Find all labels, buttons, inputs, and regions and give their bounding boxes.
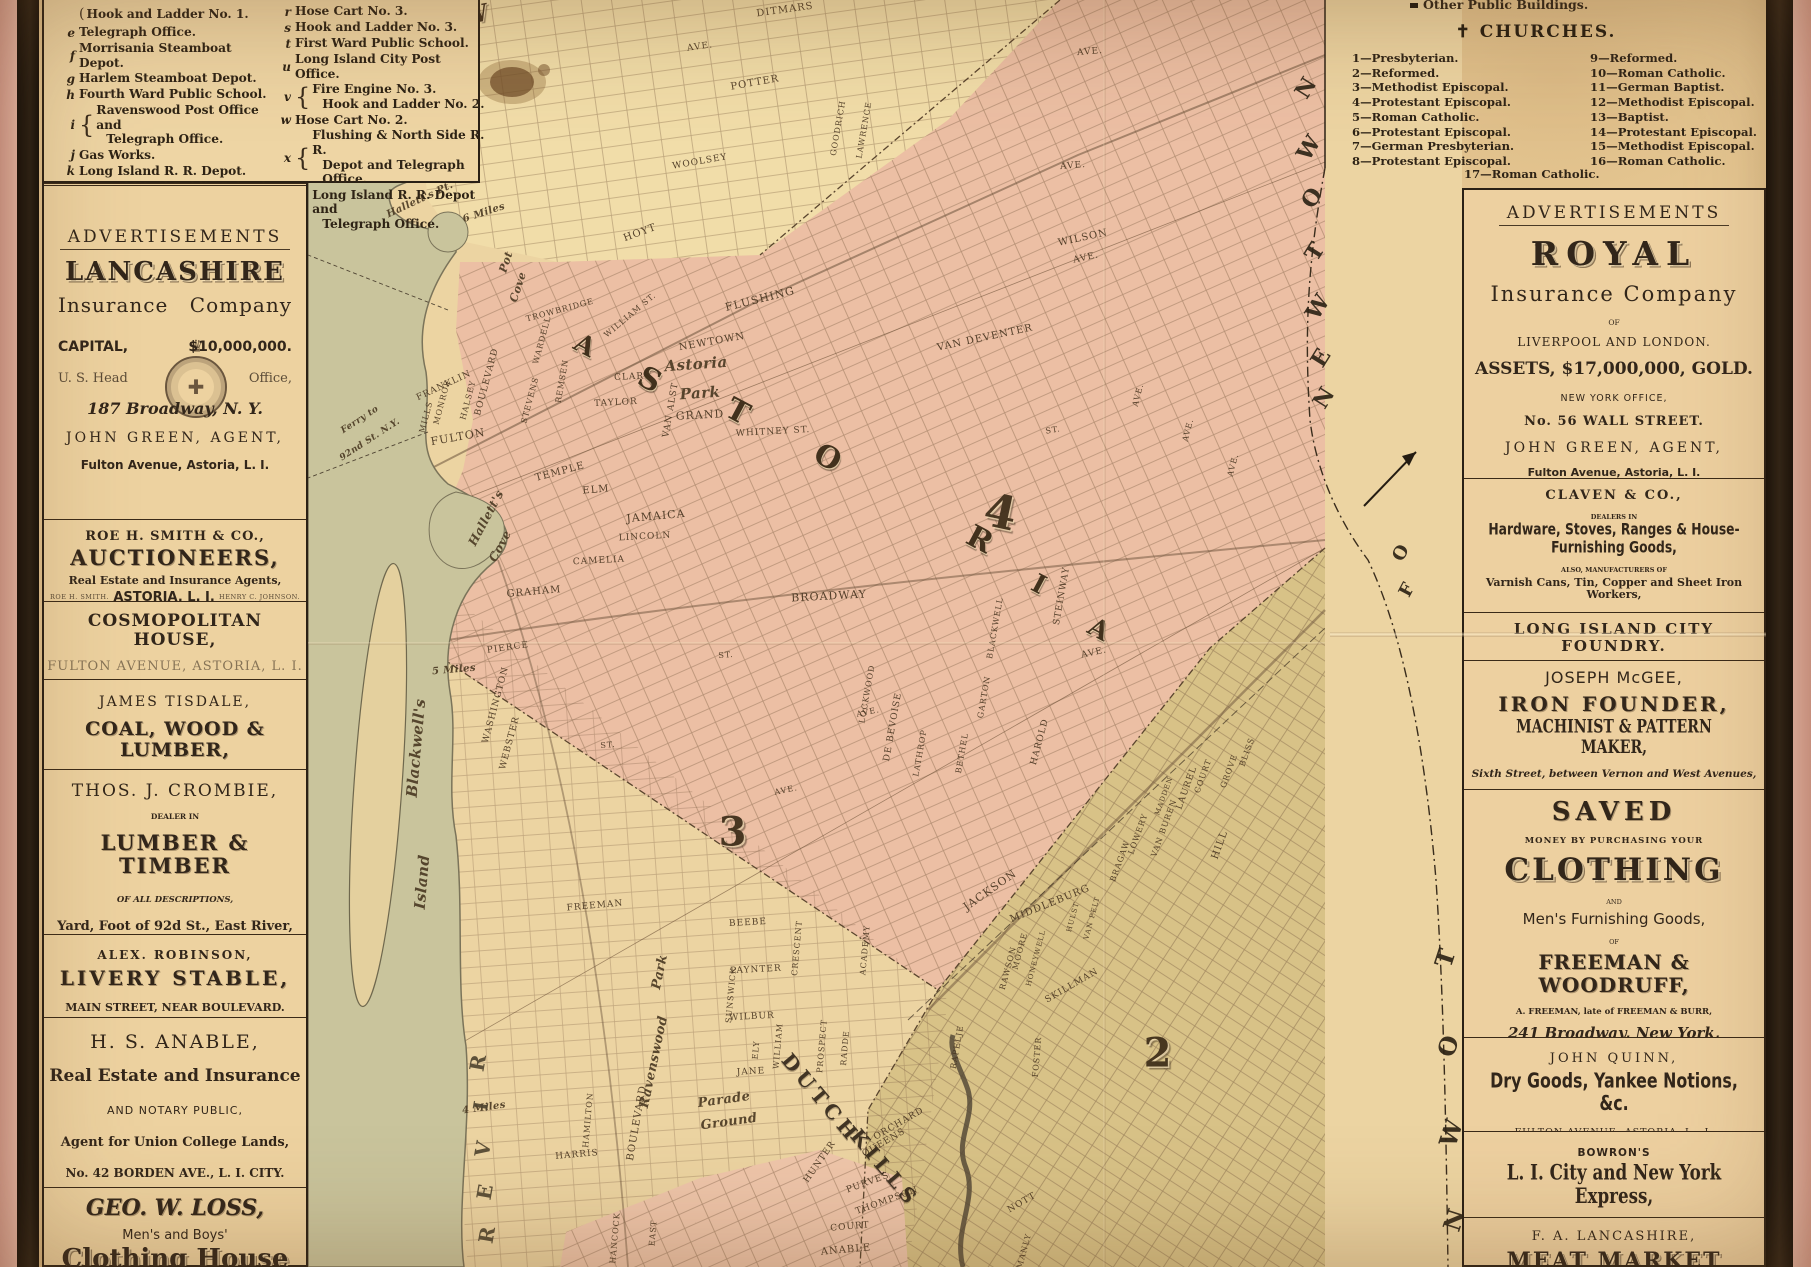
map-label: LOWERY: [1126, 812, 1149, 855]
legend-item-label: Fourth Ward Public School.: [79, 87, 267, 102]
map-label: BETHEL: [954, 732, 970, 774]
legend-item: (Hook and Ladder No. 1.: [60, 4, 272, 24]
ad-text: ASTORIA, L. I.: [113, 590, 214, 601]
ad-text: CLOTHING: [1504, 853, 1723, 888]
legend-item-line: Hook and Ladder No. 3.: [295, 20, 457, 35]
ad-roe-smith-auctioneers: ROE H. SMITH & CO.,AUCTIONEERS,Real Esta…: [44, 519, 306, 601]
map-label: CRESCENT: [790, 920, 804, 976]
ad-bowron-express: BOWRON'SL. I. City and New York Express,…: [1464, 1131, 1764, 1217]
map-label: LAWRENCE: [855, 101, 874, 159]
ad-text: Agent for Union College Lands,: [61, 1136, 289, 1151]
map-label: Park: [679, 383, 721, 404]
ad-divider: [1464, 660, 1764, 661]
ad-text: ADVERTISEMENTS: [60, 228, 291, 250]
ad-line: FULTON AVENUE, ASTORIA, L. -I.: [1464, 1121, 1764, 1131]
map-label: GRAND: [675, 407, 724, 423]
ad-line: ROE H. SMITH & CO.,: [44, 526, 306, 545]
map-label: A: [569, 328, 602, 364]
map-label: 2: [1144, 1030, 1173, 1077]
ad-line: FREEMAN & WOODRUFF,: [1464, 951, 1764, 996]
legend-item-label: Hook and Ladder No. 3.: [295, 20, 457, 35]
legend-item-line: Morrisania Steamboat Depot.: [79, 41, 272, 70]
legend-item-key: w: [276, 113, 291, 127]
map-label: W: [1300, 290, 1335, 325]
map-label: W: [1291, 131, 1326, 166]
legend-item-line: Hose Cart No. 3.: [295, 4, 408, 19]
map-label: NOTT: [1006, 1191, 1038, 1215]
ad-line: 241 Broadway, New York,: [1464, 1024, 1764, 1037]
ad-line: Men's Furnishing Goods,: [1464, 910, 1764, 928]
legend-item-line: Long Island City Post Office.: [295, 52, 488, 81]
map-label: I: [1026, 569, 1052, 602]
church-item: 6—Protestant Episcopal.: [1352, 125, 1514, 140]
legend-item-line: Fire Engine No. 3.: [312, 82, 484, 97]
ad-line: LANCASHIRE: [44, 258, 306, 287]
map-label: LATHROP: [911, 729, 928, 778]
map-label: O: [808, 436, 848, 480]
legend-item-line: Telegraph Office.: [96, 132, 272, 147]
map-label: AVE.: [1060, 160, 1087, 172]
map-label: E: [1306, 344, 1337, 372]
map-label: RADDE: [839, 1030, 851, 1066]
map-label: HULST: [1065, 901, 1081, 933]
ad-line: IRON FOUNDER,: [1464, 693, 1764, 715]
legend-item-line: Hook and Ladder No. 2.: [312, 97, 484, 112]
legend-item-brace: {: [79, 115, 94, 135]
church-item: 11—German Baptist.: [1590, 80, 1757, 95]
legend-item: i{Ravenswood Post Office andTelegraph Of…: [60, 103, 272, 147]
legend-item: uLong Island City Post Office.: [276, 52, 488, 81]
church-item: 13—Baptist.: [1590, 110, 1757, 125]
church-item: 5—Roman Catholic.: [1352, 110, 1514, 125]
ad-text: Fulton Avenue, Astoria, L. I.: [81, 459, 269, 472]
map-label: DE BEVOISE: [882, 692, 904, 763]
ad-cosmopolitan-house: COSMOPOLITAN HOUSE,FULTON AVENUE, ASTORI…: [44, 601, 306, 679]
legend-item: kLong Island R. R. Depot.: [60, 164, 272, 179]
ad-line: MEAT MARKET: [1464, 1249, 1764, 1265]
scan-border-right: [1766, 0, 1793, 1267]
ad-line: JOSEPH McGEE,: [1464, 669, 1764, 687]
ad-text: Hardware, Stoves, Ranges & House-Furnish…: [1482, 522, 1746, 558]
legend-item: fMorrisania Steamboat Depot.: [60, 41, 272, 70]
ad-line: MONEY BY PURCHASING YOUR: [1464, 829, 1764, 847]
ad-line: MAIN STREET, NEAR BOULEVARD.: [44, 997, 306, 1015]
legend-item-label: Gas Works.: [79, 148, 155, 163]
ad-line: ADVERTISEMENTS: [44, 228, 306, 250]
ad-text: L. I. City and New York Express,: [1482, 1161, 1746, 1209]
map-label: JANE: [736, 1066, 765, 1077]
legend-item-key: g: [60, 72, 75, 86]
map-label: TEMPLE: [534, 460, 586, 484]
map-label: AVE.: [1226, 452, 1241, 477]
advertisements-right-column: ADVERTISEMENTSROYALInsurance CompanyOFLI…: [1462, 188, 1766, 1267]
ad-text: HENRY C. JOHNSON.: [219, 593, 300, 601]
map-label: F: [1395, 579, 1420, 600]
ad-text: H. S. ANABLE,: [90, 1032, 260, 1053]
map-label: O: [1431, 1032, 1465, 1061]
ad-line: Clothing House: [44, 1245, 306, 1266]
ad-text: JAMES TISDALE,: [99, 695, 251, 711]
legend-item-line: Telegraph Office.: [79, 25, 196, 40]
ad-line: FULTON AVENUE, ASTORIA, L. I.: [44, 656, 306, 675]
map-label: R: [474, 1223, 501, 1246]
ad-line: U. S. HeadOffice,: [44, 371, 306, 386]
ad-text: OF: [1608, 319, 1619, 327]
map-label: VAN DEVENTER: [936, 322, 1034, 353]
ad-text: Insurance Company: [1490, 283, 1737, 307]
map-label: HAMILTON: [581, 1092, 595, 1148]
map-label: HAROLD: [1029, 718, 1051, 767]
antique-map-sheet: DITMARSAVE.POTTERAVE.WOOLSEYAVE.GOODRICH…: [0, 0, 1811, 1267]
ad-line: Fulton Avenue, Astoria, L. I.: [44, 455, 306, 473]
ad-line: NEW YORK OFFICE,: [1464, 387, 1764, 405]
public-building-icon: [1410, 3, 1418, 8]
ad-line: Dry Goods, Yankee Notions, &c.: [1464, 1073, 1764, 1113]
legend-item-key: x: [276, 151, 291, 165]
ad-text: CAPITAL,: [58, 339, 128, 355]
ad-line: AND: [1464, 890, 1764, 908]
ad-text: ROYAL: [1531, 236, 1697, 273]
ad-text: IRON FOUNDER,: [1498, 693, 1729, 715]
map-label: R: [465, 1051, 492, 1074]
ad-line: ROE H. SMITH.ASTORIA, L. I.HENRY C. JOHN…: [44, 590, 306, 601]
map-label: FULTON: [430, 426, 487, 448]
map-label: RAPELJE: [949, 1024, 966, 1069]
ad-text: ALSO, MANUFACTURERS OF: [1561, 567, 1667, 574]
map-label: T: [719, 391, 756, 433]
ad-line: THOS. J. CROMBIE,: [44, 782, 306, 801]
legend-item-label: Morrisania Steamboat Depot.: [79, 41, 272, 70]
map-label: MANLY: [1015, 1232, 1033, 1267]
map-label: T: [1428, 945, 1461, 971]
legend-item-line: Ravenswood Post Office and: [96, 103, 272, 132]
map-label: JAMAICA: [626, 507, 686, 525]
legend-item-key: f: [60, 49, 75, 63]
map-label: WILLIAM ST.: [602, 291, 657, 340]
ad-line: MACHINIST & PATTERN MAKER,: [1464, 719, 1764, 755]
legend-item-label: Hose Cart No. 2.: [295, 113, 408, 128]
ad-line: Fulton Avenue, Astoria, L. I.: [1464, 462, 1764, 478]
map-label: Astoria: [664, 353, 728, 375]
map-label: A: [1083, 612, 1116, 648]
ad-text: Real Estate and Insurance Agents,: [69, 575, 282, 587]
legend-item-brace: {: [295, 87, 310, 107]
church-item: 12—Methodist Episcopal.: [1590, 95, 1757, 110]
ad-text: BOWRON'S: [1577, 1148, 1650, 1160]
map-label: AVE.: [686, 40, 713, 54]
legend-item-key: j: [60, 148, 75, 162]
churches-column-2: 9—Reformed.10—Roman Catholic.11—German B…: [1590, 51, 1757, 169]
map-label: HANCOCK: [608, 1212, 621, 1264]
ad-line: OF: [1464, 311, 1764, 329]
ad-text: ROE H. SMITH & CO.,: [85, 530, 264, 545]
ad-text: GEO. W. LOSS,: [86, 1196, 264, 1221]
ad-line: L. I. City and New York Express,: [1464, 1164, 1764, 1207]
map-label: N: [1308, 383, 1341, 414]
legend-item: eTelegraph Office.: [60, 25, 272, 40]
advertisements-left-column: ADVERTISEMENTSLANCASHIREInsuranceCompany…: [42, 183, 308, 1267]
ad-text: LUMBER & TIMBER: [44, 831, 306, 878]
church-item: 4—Protestant Episcopal.: [1352, 95, 1514, 110]
legend-item: v{Fire Engine No. 3.Hook and Ladder No. …: [276, 82, 488, 111]
ad-lancashire-insurance: ADVERTISEMENTSLANCASHIREInsuranceCompany…: [44, 183, 306, 519]
ad-line: JOHN QUINN,: [1464, 1048, 1764, 1067]
ad-line: JOHN GREEN, AGENT,: [1464, 438, 1764, 457]
map-label: Parade: [697, 1089, 751, 1111]
map-label: Cove: [486, 528, 514, 564]
map-label: BEEBE: [729, 917, 767, 929]
map-label: Island: [411, 854, 434, 910]
legend-item: wHose Cart No. 2.: [276, 112, 488, 127]
ad-text: FULTON AVENUE, ASTORIA, L. I.: [47, 660, 302, 675]
map-label: WOOLSEY: [672, 152, 729, 172]
map-label: PAYNTER: [730, 964, 782, 977]
ad-text: Company: [190, 293, 292, 317]
map-label: S: [632, 359, 668, 401]
map-label: BROADWAY: [791, 588, 867, 605]
ad-text: Men's and Boys': [122, 1229, 227, 1244]
map-label: NEWTOWN: [678, 331, 746, 354]
ad-text: NEW YORK OFFICE,: [1561, 394, 1668, 405]
ad-text: No. 56 WALL STREET.: [1524, 415, 1704, 430]
ad-text: Clothing House: [62, 1245, 289, 1266]
ad-line: No. 42 BORDEN AVE., L. I. CITY.: [44, 1163, 306, 1181]
ad-text: ASSETS, $17,000,000, GOLD.: [1475, 360, 1753, 379]
legend-item-line: Fourth Ward Public School.: [79, 87, 267, 102]
map-label: PROSPECT: [815, 1019, 829, 1074]
map-label: PIERCE: [486, 640, 529, 656]
map-label: Pot: [496, 250, 515, 275]
ad-text: MACHINIST & PATTERN MAKER,: [1482, 716, 1746, 757]
ad-line: ALSO, MANUFACTURERS OF: [1464, 558, 1764, 576]
map-label: FOSTER: [1031, 1036, 1044, 1077]
legend-column-1: (Hook and Ladder No. 1.eTelegraph Office…: [60, 4, 272, 212]
map-label: REMSEN: [554, 358, 571, 403]
map-label: ST.: [1045, 424, 1062, 436]
ad-text: COSMOPOLITAN HOUSE,: [44, 612, 306, 650]
map-label: WEBSTER: [498, 715, 522, 771]
ad-text: LANCASHIRE: [65, 258, 285, 287]
ad-text: LIVERPOOL AND LONDON.: [1517, 336, 1711, 349]
legend-item-key: i: [60, 118, 75, 132]
ad-text: LONG ISLAND CITY FOUNDRY.: [1464, 621, 1764, 655]
legend-item-label: Flushing & North Side R. R.Depot and Tel…: [312, 128, 488, 186]
legend-item-line: Hook and Ladder No. 1.: [86, 7, 248, 22]
ad-line: H. S. ANABLE,: [44, 1032, 306, 1053]
map-label: AVE.: [1131, 382, 1146, 407]
map-label: BLISS: [1238, 736, 1257, 767]
ad-line: CLOTHING: [1464, 853, 1764, 888]
ad-line: BOWRON'S: [1464, 1142, 1764, 1160]
ad-text: Sixth Street, between Vernon and West Av…: [1472, 769, 1757, 781]
ad-line: OF: [1464, 930, 1764, 948]
map-label: GARTON: [976, 675, 992, 719]
ad-text: JOHN QUINN,: [1550, 1052, 1679, 1067]
map-label: 5 Miles: [432, 663, 477, 678]
map-label: E: [472, 1180, 499, 1201]
ad-line: Insurance Company: [1464, 283, 1764, 307]
ad-line: JAMES TISDALE,: [44, 692, 306, 711]
map-label: SKILLMAN: [1044, 967, 1101, 1006]
ad-text: AUCTIONEERS,: [70, 546, 279, 570]
ad-line: Office cor. Jackson Ave. and 3d St., L. …: [1464, 1212, 1764, 1217]
legend-item-key: k: [60, 164, 75, 178]
ad-text: 241 Broadway, New York,: [1508, 1025, 1720, 1037]
legend-item: sHook and Ladder No. 3.: [276, 20, 488, 35]
ad-text: ALEX. ROBINSON,: [97, 949, 252, 962]
ad-text: Fulton Avenue, Astoria, L. I.: [1528, 467, 1701, 478]
map-label: GROVE: [1219, 753, 1240, 789]
map-label: AVE.: [1080, 645, 1107, 660]
ad-geo-loss-clothing: GEO. W. LOSS,Men's and Boys'Clothing Hou…: [44, 1187, 306, 1266]
ad-anable-realestate: H. S. ANABLE,Real Estate and InsuranceAN…: [44, 1017, 306, 1187]
church-item: 15—Methodist Episcopal.: [1590, 139, 1757, 154]
ad-text: Dry Goods, Yankee Notions, &c.: [1482, 1070, 1746, 1116]
ad-text: Men's Furnishing Goods,: [1523, 911, 1706, 928]
ad-line: LIVERY STABLE,: [44, 967, 306, 989]
legend-public-buildings: (Hook and Ladder No. 1.eTelegraph Office…: [42, 0, 480, 183]
legend-item-key: h: [60, 88, 75, 102]
ad-royal-insurance: ADVERTISEMENTSROYALInsurance CompanyOFLI…: [1464, 190, 1764, 478]
ad-james-tisdale-coal: JAMES TISDALE,COAL, WOOD & LUMBER,BOULEV…: [44, 679, 306, 769]
ad-line: Real Estate and Insurance: [44, 1067, 306, 1086]
legend-item-label: Harlem Steamboat Depot.: [79, 71, 257, 86]
legend-item-line: Harlem Steamboat Depot.: [79, 71, 257, 86]
map-label: LINCOLN: [619, 531, 672, 544]
ad-text: AND NOTARY PUBLIC,: [107, 1105, 243, 1117]
church-item: 16—Roman Catholic.: [1590, 154, 1757, 169]
map-label: Cove: [507, 270, 529, 304]
ad-text: FREEMAN & WOODRUFF,: [1464, 951, 1764, 996]
ad-text: SAVED: [1552, 798, 1677, 827]
ad-text: JOHN GREEN, AGENT,: [66, 431, 284, 447]
legend-item-brace: {: [295, 148, 310, 168]
legend-item-label: Long Island R. R. Depot andTelegraph Off…: [312, 188, 488, 232]
map-label: Blackwell's: [403, 698, 430, 798]
ad-text: MAIN STREET, NEAR BOULEVARD.: [65, 1002, 285, 1014]
legend-item-label: Hook and Ladder No. 1.: [86, 7, 248, 22]
ad-line: LONG ISLAND CITY.: [1464, 785, 1764, 789]
ad-crombie-lumber: THOS. J. CROMBIE,DEALER INLUMBER & TIMBE…: [44, 769, 306, 934]
ad-text: ROE H. SMITH.: [50, 593, 109, 601]
ad-line: AND AGENTS FOR: [1464, 603, 1764, 612]
ad-line: Agent for Union College Lands,: [44, 1132, 306, 1151]
ad-text: AND: [1606, 899, 1622, 906]
map-label: FREEMAN: [566, 899, 623, 914]
paper-edge-right: [1793, 0, 1811, 1267]
ad-line: 187 Broadway, N. Y.: [44, 400, 306, 418]
legend-item-label: Ravenswood Post Office andTelegraph Offi…: [96, 103, 272, 147]
map-label: HOYT: [622, 222, 658, 244]
ad-line: Sixth Street, between Vernon and West Av…: [1464, 763, 1764, 781]
ad-line: JOHN GREEN, AGENT,: [44, 428, 306, 447]
ad-text: OF ALL DESCRIPTIONS,: [117, 896, 233, 906]
ad-john-quinn-drygoods: JOHN QUINN,Dry Goods, Yankee Notions, &c…: [1464, 1037, 1764, 1131]
map-label: WILSON: [1057, 227, 1109, 248]
map-label: WILBUR: [729, 1011, 775, 1023]
ad-line: LONG ISLAND CITY FOUNDRY.: [1464, 621, 1764, 655]
ad-line: LIVERPOOL AND LONDON.: [1464, 332, 1764, 350]
map-label: DITMARS: [756, 1, 814, 20]
ad-freeman-woodruff-clothing: SAVEDMONEY BY PURCHASING YOURCLOTHINGAND…: [1464, 789, 1764, 1037]
map-label: O: [1296, 183, 1328, 213]
legend-item: jGas Works.: [60, 148, 272, 163]
ad-text: Insurance: [58, 293, 168, 317]
map-label: O: [1388, 541, 1414, 565]
legend-item: tFirst Ward Public School.: [276, 36, 488, 51]
map-label: FLUSHING: [724, 284, 797, 314]
legend-item-line: Gas Works.: [79, 148, 155, 163]
ad-line: AUCTIONEERS,: [44, 546, 306, 570]
ad-mcgee-iron-founder: LONG ISLAND CITY FOUNDRY.JOSEPH McGEE,IR…: [1464, 612, 1764, 789]
map-label: TROWBRIDGE: [525, 297, 595, 324]
other-public-buildings-label: Other Public Buildings.: [1423, 0, 1588, 12]
ad-line: DEALER IN: [44, 805, 306, 823]
ad-line: COSMOPOLITAN HOUSE,: [44, 612, 306, 650]
ad-text: A. FREEMAN, late of FREEMAN & BURR,: [1516, 1008, 1712, 1018]
ad-text: Real Estate and Insurance: [49, 1067, 300, 1086]
church-item: 7—German Presbyterian.: [1352, 139, 1514, 154]
ad-text: COAL, WOOD & LUMBER,: [44, 719, 306, 762]
ad-text: DEALER IN: [151, 813, 199, 821]
church-item: 10—Roman Catholic.: [1590, 66, 1757, 81]
ad-line: CLAVEN & CO.,: [1464, 485, 1764, 504]
ad-line: LUMBER & TIMBER: [44, 831, 306, 878]
ad-line: InsuranceCompany: [44, 293, 306, 317]
legend-item: rHose Cart No. 3.: [276, 4, 488, 19]
map-label: AVE.: [1181, 417, 1196, 442]
map-label: WARDELL: [531, 315, 553, 365]
legend-item-key: v: [276, 90, 291, 104]
map-label: CAMELIA: [573, 555, 626, 568]
legend-item-label: Fire Engine No. 3.Hook and Ladder No. 2.: [312, 82, 484, 111]
legend-item-line: Long Island R. R. Depot.: [79, 164, 246, 179]
ad-claven-hardware: CLAVEN & CO.,DEALERS INHardware, Stoves,…: [1464, 478, 1764, 612]
ad-line: OF ALL DESCRIPTIONS,: [44, 888, 306, 906]
legend-item-key: s: [276, 21, 291, 35]
ad-line: Yard, Foot of 92d St., East River,: [44, 916, 306, 934]
legend-item: gHarlem Steamboat Depot.: [60, 71, 272, 86]
legend-item-line: Long Island R. R. Depot and: [312, 188, 488, 217]
map-label: 4: [979, 482, 1023, 542]
legend-item-label: First Ward Public School.: [295, 36, 469, 51]
ad-text: $10,000,000.: [188, 339, 292, 355]
ad-line: ADVERTISEMENTS: [1464, 204, 1764, 226]
ad-text: Varnish Cans, Tin, Copper and Sheet Iron…: [1464, 577, 1764, 602]
legend-churches: Other Public Buildings. ✝ CHURCHES. 1—Pr…: [1336, 0, 1772, 188]
map-label: BRAGAW: [1108, 839, 1131, 883]
ad-text: Yard, Foot of 92d St., East River,: [57, 920, 293, 934]
ad-text: MONEY BY PURCHASING YOUR: [1525, 837, 1703, 847]
ad-text: CLAVEN & CO.,: [1545, 489, 1682, 504]
church-item: 3—Methodist Episcopal.: [1352, 80, 1514, 95]
ad-line: CAPITAL,$10,000,000.: [44, 339, 306, 355]
legend-item-label: Long Island R. R. Depot.: [79, 164, 246, 179]
ad-text: ADVERTISEMENTS: [1499, 204, 1730, 226]
ad-line: Men's and Boys': [44, 1225, 306, 1244]
ad-line: AND NOTARY PUBLIC,: [44, 1100, 306, 1118]
legend-item-brace: (: [79, 4, 84, 24]
ad-text: THOS. J. CROMBIE,: [72, 782, 278, 801]
ad-line: GEO. W. LOSS,: [44, 1196, 306, 1221]
ad-lancashire-meat-market: F. A. LANCASHIRE,MEAT MARKET: [1464, 1217, 1764, 1265]
ad-text: FULTON AVENUE, ASTORIA, L. -I.: [1515, 1128, 1714, 1131]
map-label: ST.: [600, 740, 616, 750]
map-label: AVE.: [1077, 46, 1104, 58]
ad-line: SAVED: [1464, 798, 1764, 827]
map-label: ANABLE: [820, 1242, 871, 1257]
ad-text: Office,: [249, 371, 292, 386]
